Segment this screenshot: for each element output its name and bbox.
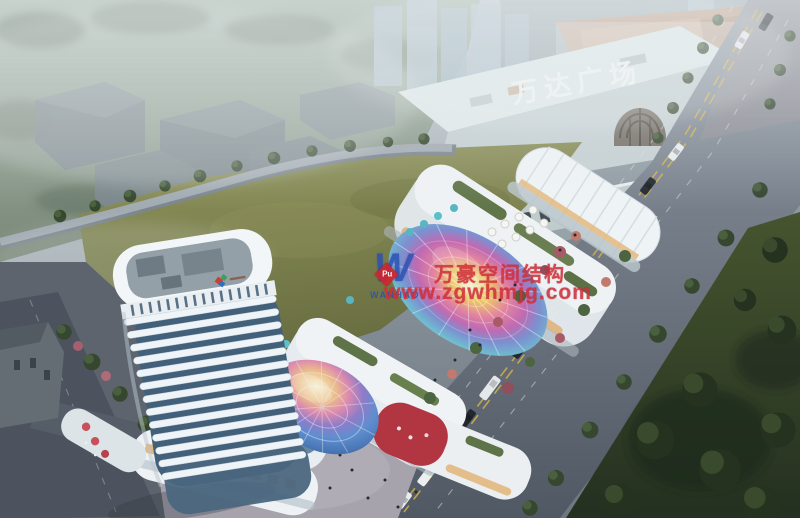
pink-shrub	[101, 371, 111, 381]
corner-building	[0, 322, 64, 428]
scene-canvas: 万达广场	[0, 0, 800, 518]
aerial-rendering-scene: 万达广场	[0, 0, 800, 518]
pink-shrub	[73, 341, 83, 351]
